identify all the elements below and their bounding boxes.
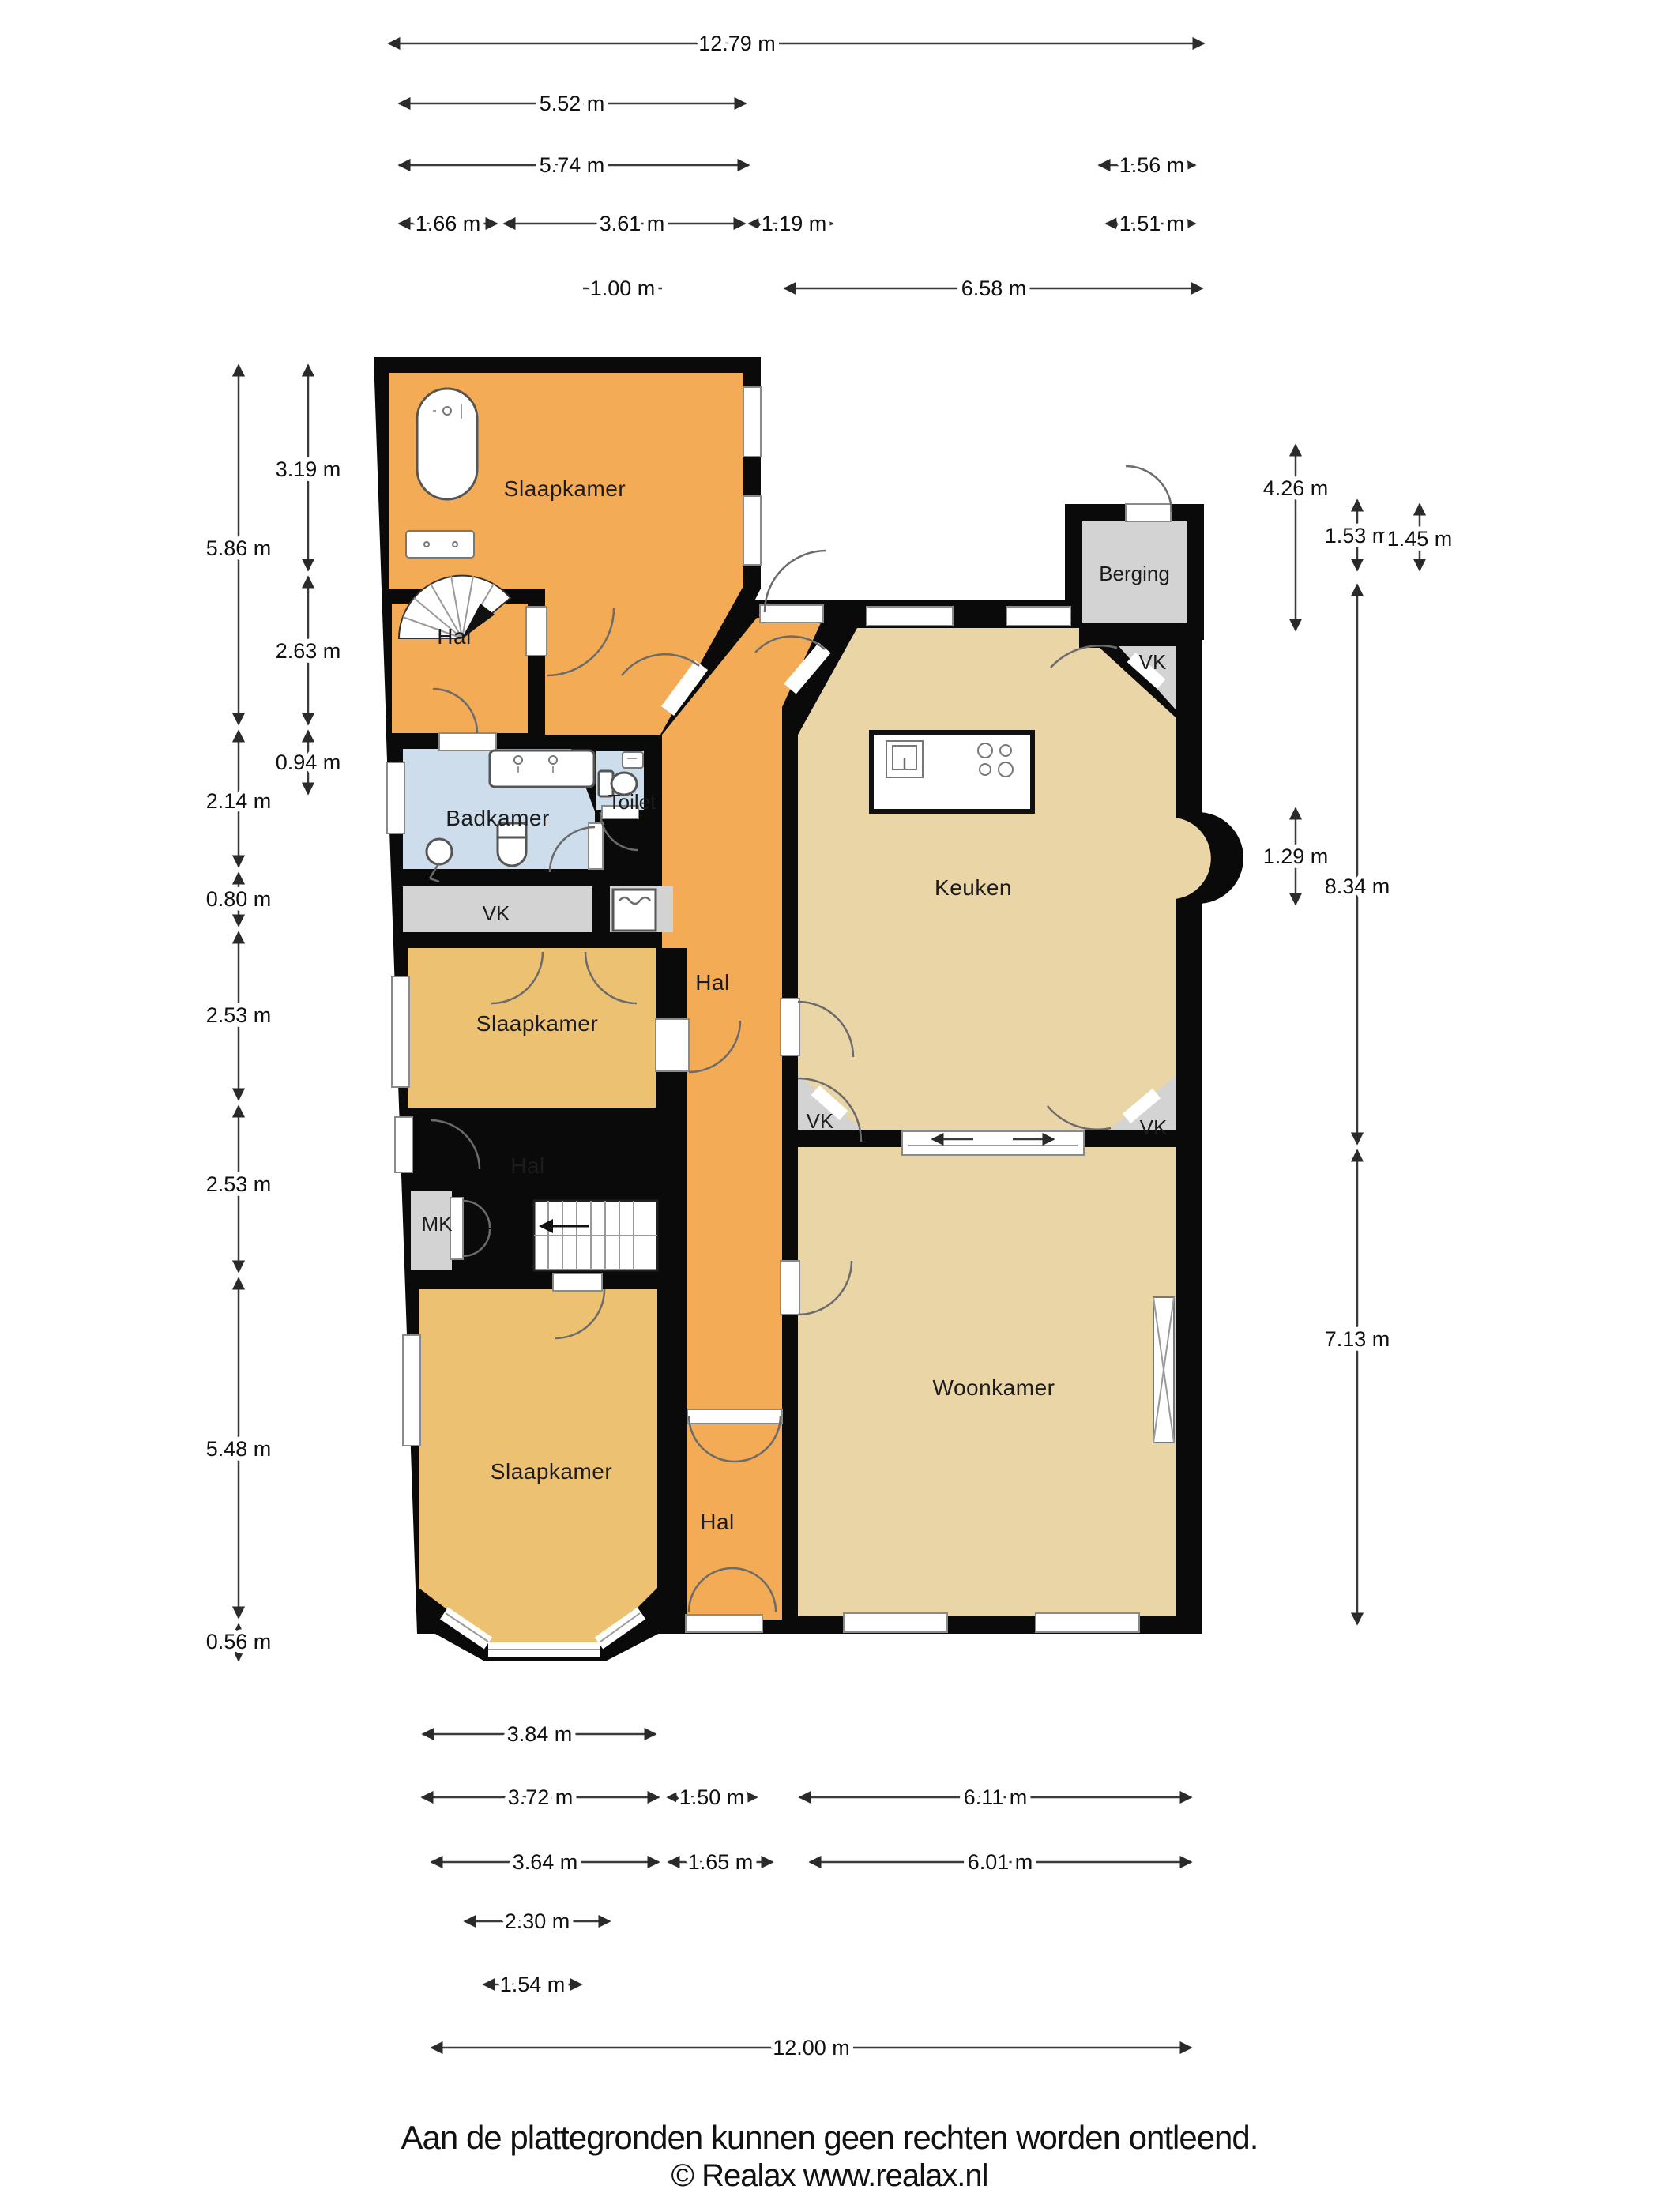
dim-top-2: 5.74 m [540, 153, 605, 177]
window-woonkamer-bottom-2 [1036, 1613, 1139, 1632]
label-hal-mid: Hal [510, 1153, 545, 1178]
dim-right-4: 8.34 m [1325, 875, 1390, 898]
label-badkamer: Badkamer [446, 806, 550, 830]
window-keuken-top-2 [1006, 607, 1070, 626]
dim-top-0: 12.79 m [698, 32, 776, 55]
door-opening-badkamer [589, 823, 603, 869]
window-keuken-top-1 [867, 607, 953, 626]
door-opening-keuken-west [781, 999, 799, 1055]
kitchen-island-icon [871, 732, 1033, 811]
dim-left-3: 2.53 m [206, 1003, 272, 1027]
label-hal-bottom: Hal [700, 1510, 735, 1534]
dim-left-6: 0.56 m [206, 1630, 272, 1653]
dim-bottom-9: 12.00 m [773, 2036, 850, 2060]
straight-stairs-icon [534, 1201, 657, 1270]
door-opening-hal-mid-double [687, 1409, 782, 1424]
door-opening-slaapkamer-bottom [553, 1273, 602, 1291]
dim-top-3: 1.56 m [1119, 153, 1185, 177]
door-opening-hal-slaapkamer-top [526, 607, 547, 656]
dim-top-4: 1.66 m [416, 212, 481, 235]
window-slaapkamer-mid-left [392, 976, 409, 1087]
dim-bottom-6: 6.01 m [968, 1850, 1033, 1874]
label-vk-bottom-left: VK [807, 1109, 834, 1133]
window-hal-bottom [686, 1615, 762, 1632]
dim-left-0: 5.86 m [206, 536, 272, 560]
dim-top-6: 1.19 m [762, 212, 827, 235]
floorplan-svg: Slaapkamer Hal Berging VK Badkamer Toile… [0, 0, 1659, 2212]
door-opening-slaapkamer-mid-right [656, 1019, 689, 1071]
dim-right-5: 7.13 m [1325, 1327, 1390, 1351]
label-vk-top-right: VK [1139, 650, 1167, 674]
dim-top-9: 6.58 m [961, 276, 1027, 300]
dim-bottom-7: 2.30 m [505, 1909, 570, 1933]
label-toilet: Toilet [608, 790, 656, 814]
label-slaapkamer-mid: Slaapkamer [476, 1011, 598, 1036]
door-opening-hal-badkamer [439, 733, 496, 750]
washing-machine-icon [613, 890, 656, 931]
dim-left-9: 0.94 m [276, 750, 341, 774]
dim-bottom-3: 6.11 m [964, 1785, 1028, 1809]
dim-bottom-1: 3.72 m [508, 1785, 574, 1809]
radiator-icon [1153, 1297, 1174, 1443]
label-woonkamer: Woonkamer [933, 1375, 1055, 1400]
dim-right-3: 1.29 m [1263, 845, 1329, 868]
dim-right-2: 1.45 m [1387, 527, 1453, 551]
window-woonkamer-bottom-1 [844, 1613, 947, 1632]
dimensions-top: 12.79 m 5.52 m 5.74 m 1.56 m 1.66 m 3.61… [389, 32, 1204, 300]
bathtub-icon [417, 389, 477, 499]
toilet-room-sink-icon [623, 752, 643, 768]
dim-left-2: 0.80 m [206, 887, 272, 911]
dresser-icon [406, 531, 474, 558]
label-slaapkamer-bottom: Slaapkamer [491, 1459, 612, 1484]
window-slaapkamer-top-right-1 [743, 387, 761, 457]
dim-bottom-0: 3.84 m [507, 1722, 573, 1746]
rooms-tan [408, 948, 657, 1645]
dimensions-bottom: 3.84 m 3.72 m 1.50 m 6.11 m 3.64 m 1.65 … [422, 1722, 1191, 2060]
door-opening-berging [1126, 504, 1171, 521]
window-slaapkamer-bottom-left [403, 1335, 420, 1446]
dim-bottom-8: 1.54 m [500, 1973, 566, 1996]
label-keuken: Keuken [935, 875, 1012, 900]
vanity-icon [490, 750, 594, 787]
dim-top-5: 3.61 m [600, 212, 665, 235]
dim-bottom-4: 3.64 m [513, 1850, 578, 1874]
label-berging: Berging [1099, 562, 1170, 585]
dim-right-0: 4.26 m [1263, 476, 1329, 500]
dim-top-7: 1.51 m [1119, 212, 1185, 235]
door-opening-woonkamer-west [781, 1261, 799, 1315]
door-opening-corridor-top [760, 605, 823, 623]
dim-left-8: 2.63 m [276, 639, 341, 663]
dim-left-4: 2.53 m [206, 1172, 272, 1196]
sliding-door-keuken-woonkamer [902, 1131, 1084, 1155]
dim-right-1: 1.53 m [1325, 524, 1390, 547]
dim-top-1: 5.52 m [540, 92, 605, 115]
window-badkamer-left [387, 762, 404, 833]
window-hal-mid-left [395, 1117, 412, 1172]
dimensions-left: 5.86 m 2.14 m 0.80 m 2.53 m 2.53 m 5.48 … [206, 365, 341, 1661]
dim-bottom-5: 1.65 m [688, 1850, 754, 1874]
dim-left-1: 2.14 m [206, 789, 272, 813]
label-slaapkamer-top: Slaapkamer [504, 476, 626, 501]
dim-top-8: 1.00 m [590, 276, 656, 300]
window-slaapkamer-top-right-2 [743, 496, 761, 565]
footer-copyright: © Realax www.realax.nl [0, 2158, 1659, 2194]
footer-disclaimer: Aan de plattegronden kunnen geen rechten… [0, 2119, 1659, 2157]
dim-left-7: 3.19 m [276, 457, 341, 481]
dimensions-right: 4.26 m 1.53 m 1.45 m 1.29 m 8.34 m 7.13 … [1263, 445, 1453, 1624]
label-mk: MK [422, 1212, 453, 1236]
label-vk-bottom-right: VK [1140, 1115, 1168, 1139]
dim-left-5: 5.48 m [206, 1437, 272, 1461]
label-hal-center: Hal [695, 970, 730, 995]
label-vk-left: VK [483, 901, 510, 925]
dim-bottom-2: 1.50 m [679, 1785, 745, 1809]
label-hal-top: Hal [437, 624, 472, 649]
